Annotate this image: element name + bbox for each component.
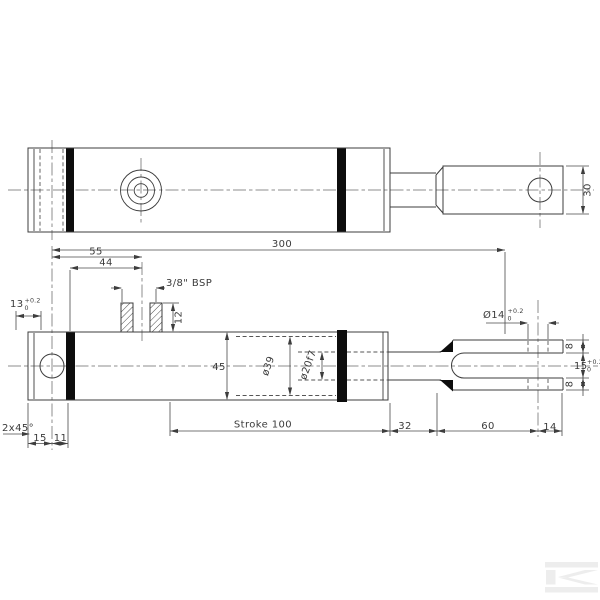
watermark-k-upper-arm [558,570,598,578]
dim-slot-width: 15 [574,361,588,372]
dim-rear-width-tol-up: +0.2 [25,298,41,305]
dim-fork-length: 60 [481,421,495,432]
seal-band-head-b [337,330,347,402]
dim-fork-hole-tol-up: +0.2 [508,308,524,315]
dim-fork-hole: Ø14 [483,309,505,321]
dimension-labels: 30 300 55 44 3/8" BSP 13 +0.2 0 12 45 ø3… [2,183,600,444]
watermark-logo: K [545,562,598,593]
dim-prong-bottom: 8 [565,381,576,388]
dim-slot-width-tol-up: +0.2 [587,359,600,366]
dim-stroke: Stroke 100 [234,420,292,431]
dim-rod-extension: 32 [398,421,412,432]
dim-overall-length: 300 [272,239,292,250]
seal-band-rear-b [66,333,75,400]
port-wall-right [150,303,162,332]
dim-slot-width-tol-dn: 0 [587,367,591,374]
dim-eye-width: 30 [583,183,594,197]
dim-barrel-od: 45 [212,362,226,373]
dim-port-thread: 3/8" BSP [166,278,212,289]
port-wall-left [121,303,133,332]
dim-port-pos-inner: 44 [99,258,113,269]
dim-rod-dia: ø20f7 [298,349,319,382]
seal-band-head [337,149,346,232]
dim-fork-tip: 14 [543,422,557,433]
dim-port-depth: 12 [174,311,185,325]
fork-slot [452,353,564,378]
centerlines [8,140,598,450]
dim-rear-width-tol-dn: 0 [25,305,29,312]
watermark-k-stem [546,570,556,585]
technical-drawing: 30 300 55 44 3/8" BSP 13 +0.2 0 12 45 ø3… [0,0,600,600]
dim-fork-hole-tol-dn: 0 [508,316,512,323]
seal-band-rear [66,149,74,232]
fork-clevis [453,340,563,390]
dim-prong-top: 8 [565,343,576,350]
drawing-canvas: 30 300 55 44 3/8" BSP 13 +0.2 0 12 45 ø3… [0,0,600,600]
watermark-k-lower-arm [558,578,598,585]
dim-rear-width: 13 [10,299,24,310]
dimension-lines [3,166,589,448]
dim-rear-a: 15 [33,433,47,444]
dim-rear-b: 11 [54,433,68,444]
dim-port-pos-outer: 55 [89,247,103,258]
dim-chamfer: 2x45° [2,423,34,434]
